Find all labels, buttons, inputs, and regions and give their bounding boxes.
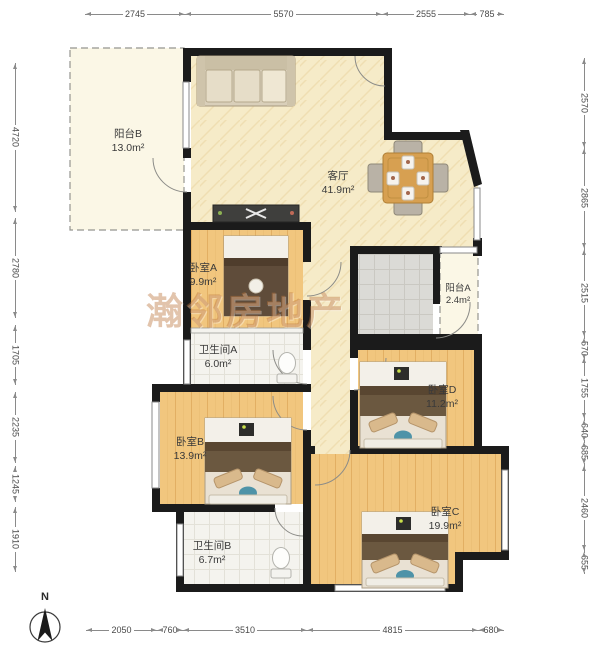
- dim-left-4: 1245: [9, 466, 21, 502]
- dim-left-3: 2235: [9, 392, 21, 463]
- floor-plan-canvas: [0, 0, 603, 648]
- room-label-bedroom-d: 卧室D11.2m²: [402, 384, 482, 411]
- floor-plan: 阳台B13.0m² 客厅41.9m² 卧室A9.9m² 阳台A2.4m² 卫生间…: [0, 0, 603, 648]
- dim-top-0: 2745: [85, 8, 185, 20]
- sofa-icon: [197, 56, 295, 106]
- dim-left-0: 4720: [9, 63, 21, 212]
- dim-right-2: 2515: [578, 249, 590, 337]
- dim-right-7: 2460: [578, 465, 590, 551]
- dim-right-4: 1755: [578, 357, 590, 419]
- dim-left-1: 2780: [9, 218, 21, 318]
- toilet-icon: [271, 548, 291, 579]
- north-arrow-icon: [30, 608, 60, 642]
- dim-bottom-2: 3510: [183, 624, 307, 636]
- dim-left-2: 1705: [9, 325, 21, 385]
- room-label-bedroom-c: 卧室C19.9m²: [405, 506, 485, 533]
- dim-top-3: 785: [470, 8, 504, 20]
- toilet-icon: [277, 353, 297, 384]
- dim-left-5: 1910: [9, 507, 21, 572]
- north-label: N: [39, 591, 51, 603]
- dim-right-3: 570: [578, 337, 590, 357]
- dim-right-1: 2865: [578, 148, 590, 249]
- room-label-balcony-b: 阳台B13.0m²: [88, 128, 168, 155]
- dim-right-5: 640: [578, 419, 590, 441]
- room-label-bedroom-b: 卧室B13.9m²: [150, 436, 230, 463]
- dim-top-2: 2555: [382, 8, 470, 20]
- dim-top-1: 5570: [185, 8, 382, 20]
- dim-bottom-3: 4815: [307, 624, 478, 636]
- room-label-bath-a: 卫生间A6.0m²: [178, 344, 258, 371]
- dim-bottom-0: 2050: [86, 624, 157, 636]
- room-label-balcony-a: 阳台A2.4m²: [436, 283, 480, 308]
- dim-right-8: 655: [578, 551, 590, 574]
- dim-bottom-1: 760: [157, 624, 183, 636]
- dim-right-0: 2570: [578, 58, 590, 148]
- room-label-bedroom-a: 卧室A9.9m²: [163, 262, 243, 289]
- dim-right-6: 685: [578, 441, 590, 465]
- dim-bottom-4: 680: [478, 624, 504, 636]
- room-label-bath-b: 卫生间B6.7m²: [172, 540, 252, 567]
- tv-console-icon: [213, 205, 299, 222]
- room-label-living: 客厅41.9m²: [298, 170, 378, 197]
